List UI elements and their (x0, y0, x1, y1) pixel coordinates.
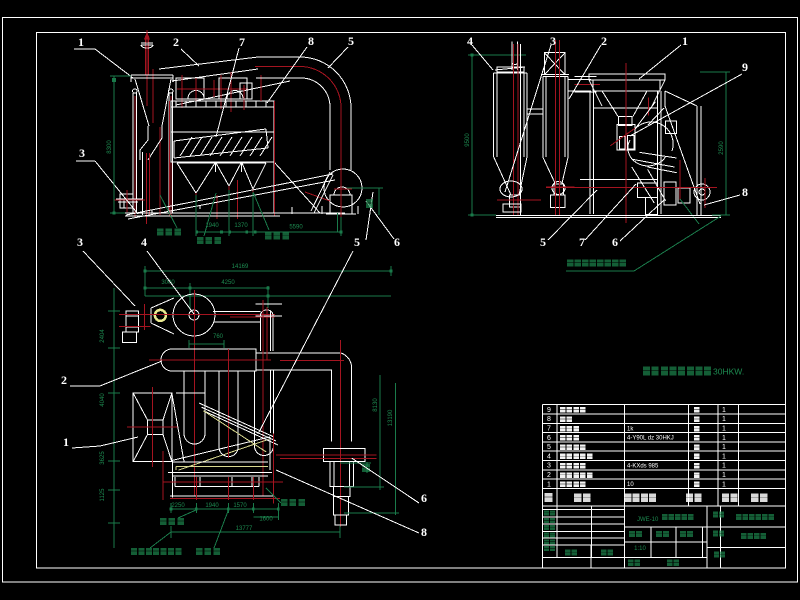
svg-text:6: 6 (612, 235, 618, 249)
svg-text:5590: 5590 (289, 225, 303, 231)
svg-text:1k: 1k (627, 426, 634, 432)
svg-text:4: 4 (467, 34, 473, 48)
svg-text:4040: 4040 (100, 393, 106, 407)
svg-text:9: 9 (547, 407, 551, 414)
svg-text:1125: 1125 (100, 488, 106, 502)
svg-text:1: 1 (722, 416, 726, 423)
svg-text:JWE-10: JWE-10 (637, 517, 659, 523)
svg-text:2250: 2250 (171, 503, 185, 509)
svg-text:10: 10 (627, 482, 634, 488)
svg-text:9: 9 (742, 60, 748, 74)
svg-text:2: 2 (173, 35, 179, 49)
svg-text:6: 6 (394, 235, 400, 249)
svg-text:6: 6 (421, 491, 427, 505)
svg-text:3: 3 (79, 146, 85, 160)
svg-text:4-KXds 985: 4-KXds 985 (627, 464, 659, 470)
svg-text:4-Y90L dz 30HKJ: 4-Y90L dz 30HKJ (627, 436, 674, 442)
svg-text:760: 760 (213, 334, 224, 340)
svg-text:2: 2 (61, 373, 67, 387)
svg-text:5: 5 (348, 34, 354, 48)
svg-text:1:10: 1:10 (634, 546, 646, 552)
svg-text:1: 1 (682, 34, 688, 48)
svg-text:7: 7 (579, 235, 585, 249)
svg-text:2: 2 (601, 34, 607, 48)
svg-text:4: 4 (547, 453, 551, 460)
svg-text:5: 5 (354, 235, 360, 249)
svg-text:8300: 8300 (107, 140, 113, 154)
svg-text:1: 1 (63, 435, 69, 449)
svg-text:13190: 13190 (388, 409, 394, 426)
svg-text:14169: 14169 (232, 264, 249, 270)
svg-text:8130: 8130 (373, 398, 379, 412)
svg-text:8: 8 (742, 185, 748, 199)
svg-text:1570: 1570 (233, 503, 247, 509)
svg-text:2: 2 (547, 472, 551, 479)
svg-text:1: 1 (722, 453, 726, 460)
svg-text:3625: 3625 (100, 451, 106, 465)
svg-text:3: 3 (547, 463, 551, 470)
svg-text:9500: 9500 (465, 133, 471, 147)
svg-text:2404: 2404 (100, 329, 106, 343)
svg-text:30HKW.: 30HKW. (713, 367, 744, 377)
svg-text:1: 1 (722, 407, 726, 414)
svg-text:1: 1 (722, 472, 726, 479)
svg-text:7: 7 (239, 35, 245, 49)
svg-text:1: 1 (78, 35, 84, 49)
svg-text:1: 1 (722, 444, 726, 451)
svg-text:4250: 4250 (221, 280, 235, 286)
svg-text:3000: 3000 (161, 280, 175, 286)
svg-text:1: 1 (722, 463, 726, 470)
svg-text:1: 1 (722, 435, 726, 442)
svg-text:8: 8 (308, 34, 314, 48)
svg-text:1: 1 (722, 481, 726, 488)
svg-text:1: 1 (547, 481, 551, 488)
svg-text:2590: 2590 (719, 141, 725, 155)
svg-text:8: 8 (547, 416, 551, 423)
svg-text:1940: 1940 (205, 503, 219, 509)
svg-text:8: 8 (421, 525, 427, 539)
svg-text:7: 7 (547, 426, 551, 433)
svg-text:13777: 13777 (236, 526, 253, 532)
svg-text:4: 4 (141, 235, 147, 249)
svg-text:5: 5 (540, 235, 546, 249)
svg-text:1370: 1370 (234, 223, 248, 229)
svg-text:1600: 1600 (259, 517, 273, 523)
svg-text:6: 6 (547, 435, 551, 442)
svg-text:3: 3 (77, 235, 83, 249)
svg-text:1: 1 (722, 426, 726, 433)
svg-text:5: 5 (547, 444, 551, 451)
